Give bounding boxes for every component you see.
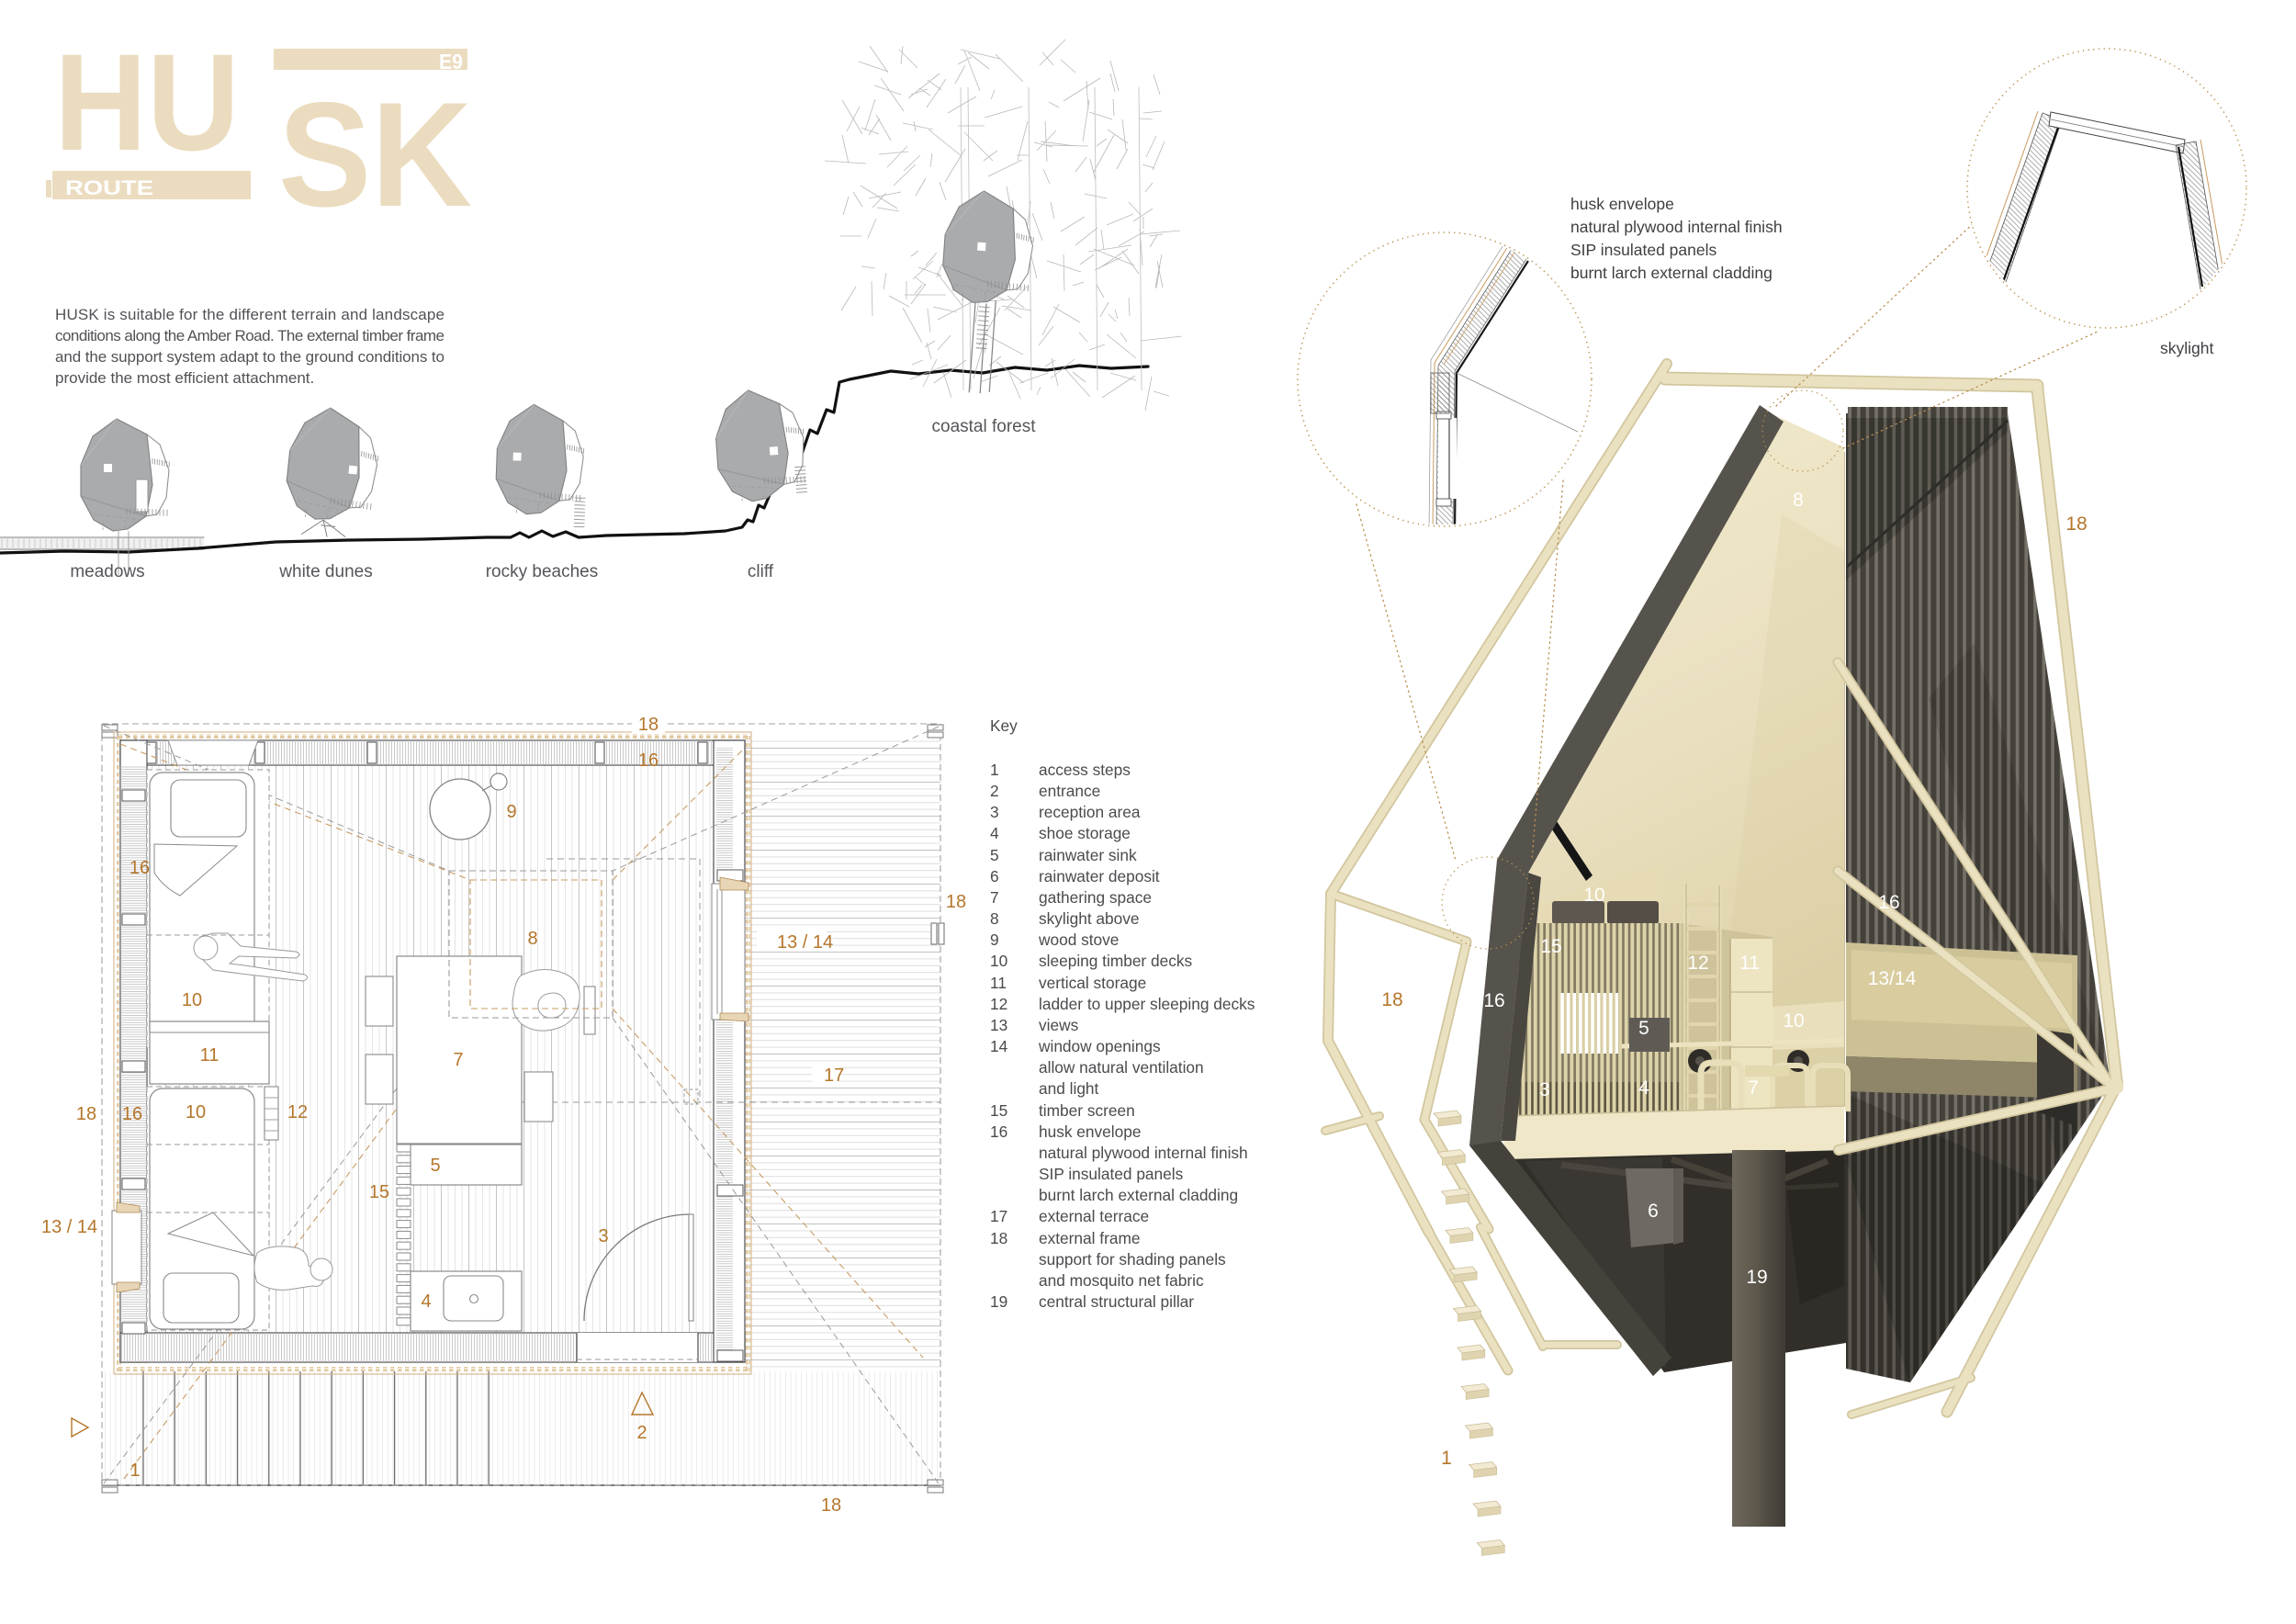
- svg-text:1: 1: [990, 761, 999, 779]
- svg-text:external frame: external frame: [1039, 1229, 1140, 1247]
- svg-text:13 / 14: 13 / 14: [41, 1217, 97, 1237]
- svg-text:coastal forest: coastal forest: [932, 417, 1037, 436]
- svg-text:10: 10: [990, 952, 1007, 970]
- svg-text:16: 16: [129, 858, 150, 878]
- svg-text:and the support system adapt t: and the support system adapt to the grou…: [55, 348, 445, 366]
- svg-text:15: 15: [369, 1182, 389, 1202]
- svg-text:husk envelope: husk envelope: [1570, 195, 1674, 213]
- svg-text:3: 3: [598, 1226, 608, 1246]
- svg-text:18: 18: [2065, 513, 2087, 535]
- svg-text:HU: HU: [54, 25, 240, 179]
- svg-text:17: 17: [824, 1066, 844, 1086]
- svg-text:16: 16: [1483, 990, 1504, 1011]
- svg-text:4: 4: [990, 824, 999, 842]
- svg-text:husk envelope: husk envelope: [1039, 1122, 1141, 1141]
- svg-text:skylight: skylight: [2160, 339, 2213, 357]
- svg-text:19: 19: [1746, 1267, 1767, 1288]
- svg-text:9: 9: [990, 930, 999, 949]
- svg-text:16: 16: [990, 1122, 1007, 1141]
- svg-text:cliff: cliff: [748, 562, 774, 581]
- svg-text:support for shading panels: support for shading panels: [1039, 1250, 1226, 1269]
- svg-text:HUSK is suitable for the diffe: HUSK is suitable for the different terra…: [55, 306, 445, 323]
- svg-text:16: 16: [1878, 892, 1899, 913]
- svg-text:17: 17: [990, 1207, 1007, 1225]
- svg-text:12: 12: [1687, 953, 1708, 974]
- svg-text:6: 6: [990, 867, 999, 885]
- svg-text:SIP insulated panels: SIP insulated panels: [1570, 241, 1716, 259]
- svg-text:5: 5: [430, 1156, 440, 1176]
- svg-text:11: 11: [200, 1045, 219, 1066]
- svg-text:wood stove: wood stove: [1038, 930, 1119, 949]
- svg-text:SK: SK: [278, 72, 472, 238]
- svg-text:window openings: window openings: [1038, 1037, 1161, 1055]
- svg-text:ladder to upper sleeping decks: ladder to upper sleeping decks: [1039, 995, 1255, 1013]
- svg-text:7: 7: [453, 1050, 463, 1070]
- svg-text:4: 4: [421, 1291, 431, 1312]
- svg-text:6: 6: [1648, 1201, 1659, 1222]
- svg-text:rainwater deposit: rainwater deposit: [1039, 867, 1160, 885]
- svg-text:10: 10: [1783, 1010, 1804, 1032]
- svg-text:9: 9: [506, 802, 516, 822]
- svg-text:3: 3: [1539, 1079, 1550, 1100]
- svg-text:entrance: entrance: [1039, 782, 1100, 800]
- svg-text:2: 2: [990, 782, 999, 800]
- svg-text:vertical storage: vertical storage: [1039, 974, 1146, 992]
- svg-text:16: 16: [638, 750, 658, 771]
- svg-text:white dunes: white dunes: [278, 562, 372, 581]
- svg-text:central structural pillar: central structural pillar: [1039, 1292, 1194, 1311]
- svg-text:8: 8: [990, 909, 999, 928]
- svg-text:natural plywood internal finis: natural plywood internal finish: [1039, 1144, 1248, 1162]
- svg-text:5: 5: [990, 846, 999, 864]
- svg-text:2: 2: [636, 1423, 647, 1443]
- svg-text:18: 18: [990, 1229, 1007, 1247]
- svg-text:14: 14: [990, 1037, 1008, 1055]
- svg-text:10: 10: [186, 1102, 206, 1122]
- svg-text:external terrace: external terrace: [1039, 1207, 1149, 1225]
- svg-text:ROUTE: ROUTE: [65, 176, 153, 199]
- svg-text:reception area: reception area: [1039, 803, 1141, 821]
- svg-text:19: 19: [990, 1292, 1007, 1311]
- svg-text:12: 12: [990, 995, 1007, 1013]
- svg-text:13 / 14: 13 / 14: [777, 932, 833, 953]
- svg-text:access steps: access steps: [1039, 761, 1131, 779]
- svg-text:provide the most efficient att: provide the most efficient attachment.: [55, 369, 314, 387]
- svg-text:allow natural ventilation: allow natural ventilation: [1039, 1058, 1204, 1077]
- svg-text:and light: and light: [1039, 1079, 1099, 1098]
- svg-text:18: 18: [1381, 989, 1402, 1010]
- svg-text:natural plywood internal finis: natural plywood internal finish: [1570, 218, 1783, 236]
- svg-text:18: 18: [76, 1104, 96, 1124]
- svg-text:7: 7: [990, 888, 999, 907]
- svg-text:Key: Key: [990, 716, 1018, 735]
- svg-text:meadows: meadows: [70, 562, 144, 581]
- svg-text:18: 18: [946, 892, 966, 912]
- svg-text:SIP insulated panels: SIP insulated panels: [1039, 1165, 1184, 1183]
- svg-text:timber screen: timber screen: [1039, 1101, 1135, 1120]
- svg-text:13/14: 13/14: [1868, 968, 1917, 989]
- svg-text:5: 5: [1638, 1018, 1649, 1039]
- svg-text:7: 7: [1748, 1077, 1759, 1099]
- svg-text:views: views: [1039, 1016, 1079, 1034]
- svg-text:and mosquito net fabric: and mosquito net fabric: [1039, 1271, 1204, 1290]
- svg-text:10: 10: [182, 990, 202, 1010]
- svg-text:sleeping timber decks: sleeping timber decks: [1039, 952, 1192, 970]
- svg-text:8: 8: [1793, 490, 1804, 511]
- svg-text:11: 11: [1739, 953, 1760, 974]
- svg-text:15: 15: [990, 1101, 1007, 1120]
- svg-text:gathering space: gathering space: [1039, 888, 1152, 907]
- svg-text:10: 10: [1583, 885, 1604, 906]
- svg-text:1: 1: [1441, 1448, 1452, 1469]
- svg-text:11: 11: [990, 974, 1007, 992]
- svg-text:E9: E9: [439, 50, 463, 73]
- svg-text:18: 18: [638, 715, 658, 735]
- svg-text:skylight above: skylight above: [1039, 909, 1140, 928]
- svg-text:16: 16: [122, 1104, 142, 1124]
- svg-text:shoe storage: shoe storage: [1039, 824, 1131, 842]
- svg-text:15: 15: [1540, 936, 1561, 957]
- svg-text:12: 12: [287, 1102, 308, 1122]
- svg-text:1: 1: [129, 1460, 140, 1481]
- svg-text:8: 8: [527, 929, 537, 949]
- svg-text:13: 13: [990, 1016, 1007, 1034]
- svg-text:conditions along the Amber Roa: conditions along the Amber Road. The ext…: [55, 327, 445, 344]
- svg-text:4: 4: [1638, 1077, 1649, 1099]
- svg-text:rocky beaches: rocky beaches: [486, 562, 599, 581]
- svg-text:3: 3: [990, 803, 999, 821]
- svg-text:burnt larch external cladding: burnt larch external cladding: [1570, 264, 1773, 282]
- svg-text:18: 18: [821, 1495, 841, 1516]
- svg-text:burnt larch external cladding: burnt larch external cladding: [1039, 1186, 1238, 1204]
- svg-text:rainwater sink: rainwater sink: [1039, 846, 1137, 864]
